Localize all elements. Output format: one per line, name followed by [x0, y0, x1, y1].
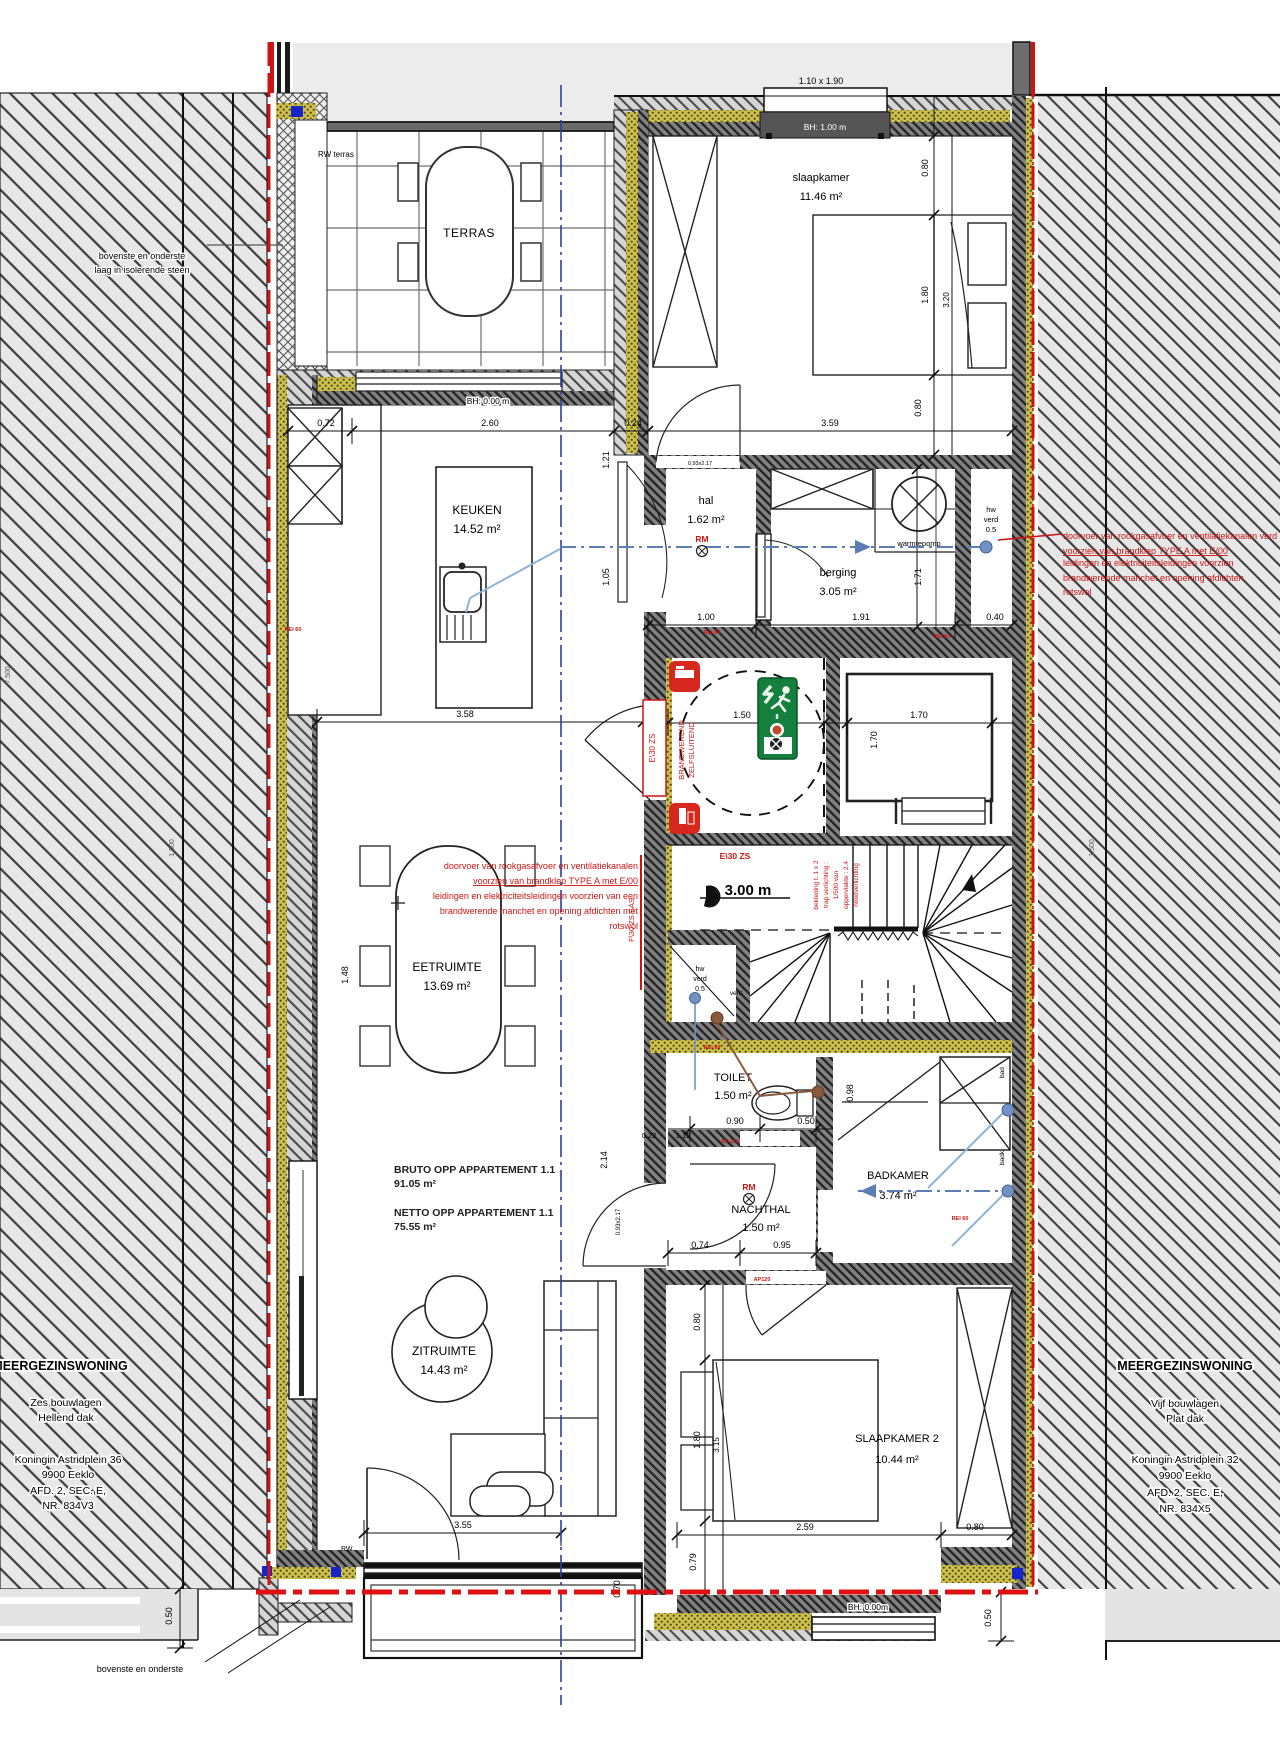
- svg-text:3.15: 3.15: [712, 1437, 721, 1453]
- svg-text:14.52 m²: 14.52 m²: [453, 522, 500, 536]
- svg-text:Plat dak: Plat dak: [1166, 1413, 1205, 1425]
- svg-text:rotswol: rotswol: [1063, 587, 1092, 597]
- svg-text:0.74: 0.74: [691, 1240, 709, 1250]
- svg-text:badk.: badk.: [999, 1149, 1006, 1165]
- svg-text:BH: 0.00m: BH: 0.00m: [848, 1602, 888, 1612]
- svg-text:hw: hw: [986, 505, 996, 514]
- svg-text:AP120: AP120: [754, 1277, 771, 1283]
- svg-text:AP 120: AP 120: [721, 1139, 739, 1145]
- svg-text:AFD. 2, SEC. E,: AFD. 2, SEC. E,: [1147, 1487, 1223, 1499]
- svg-text:hw: hw: [696, 966, 706, 973]
- svg-text:7.500: 7.500: [5, 666, 12, 684]
- svg-text:13.69 m²: 13.69 m²: [423, 979, 470, 993]
- svg-text:9900 Eeklo: 9900 Eeklo: [1159, 1470, 1212, 1482]
- svg-text:EETRUIMTE: EETRUIMTE: [412, 960, 481, 974]
- svg-text:E\30 ZS: E\30 ZS: [720, 851, 751, 861]
- svg-text:1.80: 1.80: [920, 286, 930, 304]
- svg-text:bovenste en onderste: bovenste en onderste: [99, 251, 186, 261]
- svg-text:hal: hal: [699, 495, 714, 507]
- svg-text:vent: vent: [730, 990, 742, 997]
- svg-text:RM: RM: [695, 534, 708, 544]
- svg-text:3.55: 3.55: [454, 1520, 472, 1530]
- svg-text:BRUTO OPP APPARTEMENT 1.1: BRUTO OPP APPARTEMENT 1.1: [394, 1164, 555, 1176]
- svg-text:Koningin Astridplein 36: Koningin Astridplein 36: [15, 1454, 122, 1466]
- svg-text:Vijf bouwlagen: Vijf bouwlagen: [1151, 1398, 1219, 1410]
- svg-text:doorvoer van rookgasafvoer en: doorvoer van rookgasafvoer en ventilatie…: [444, 861, 638, 871]
- svg-text:1.62 m²: 1.62 m²: [687, 514, 725, 526]
- svg-text:1.500: 1.500: [1089, 839, 1096, 857]
- svg-text:REI 60: REI 60: [704, 630, 721, 636]
- svg-text:F\30 ZS SAS: F\30 ZS SAS: [627, 898, 636, 942]
- svg-text:voorzien van brandklep TYPE A: voorzien van brandklep TYPE A met E/00: [1063, 546, 1228, 556]
- svg-text:RM: RM: [742, 1182, 755, 1192]
- svg-text:3.05 m²: 3.05 m²: [819, 586, 857, 598]
- svg-text:E\30 ZS: E\30 ZS: [648, 734, 657, 763]
- svg-text:verd: verd: [984, 515, 999, 524]
- svg-text:1.70: 1.70: [869, 731, 879, 749]
- svg-text:14.43 m²: 14.43 m²: [420, 1363, 467, 1377]
- svg-text:0.93x2.17: 0.93x2.17: [688, 461, 712, 467]
- svg-text:BH: 1.00 m: BH: 1.00 m: [804, 122, 847, 132]
- svg-text:0.90: 0.90: [726, 1116, 744, 1126]
- svg-text:1.00: 1.00: [697, 612, 715, 622]
- svg-text:doorvoer van rookgasafvoer en: doorvoer van rookgasafvoer en ventilatie…: [1063, 531, 1277, 541]
- svg-text:RW: RW: [341, 1546, 353, 1553]
- svg-text:1.50: 1.50: [733, 710, 751, 720]
- svg-text:0.98: 0.98: [845, 1084, 855, 1102]
- svg-text:0.70: 0.70: [612, 1580, 622, 1598]
- svg-text:1.80: 1.80: [692, 1431, 702, 1449]
- svg-text:0.24: 0.24: [624, 418, 642, 428]
- svg-text:Zes bouwlagen: Zes bouwlagen: [30, 1397, 101, 1409]
- svg-text:laag in isolerende steen: laag in isolerende steen: [94, 265, 189, 275]
- svg-text:1.91: 1.91: [852, 612, 870, 622]
- svg-text:trap verlichting :: trap verlichting :: [823, 862, 830, 908]
- svg-text:NETTO OPP APPARTEMENT 1.1: NETTO OPP APPARTEMENT 1.1: [394, 1207, 554, 1219]
- svg-text:BH: 0.00 m: BH: 0.00 m: [467, 396, 510, 406]
- svg-text:BRANDWEREND: BRANDWEREND: [677, 720, 686, 780]
- svg-text:1.21: 1.21: [601, 451, 611, 469]
- svg-text:brandwerende manchet en openin: brandwerende manchet en opening afdichte…: [1063, 573, 1244, 583]
- svg-text:0.72: 0.72: [317, 418, 335, 428]
- svg-text:ZELFSLUITEND: ZELFSLUITEND: [687, 722, 696, 778]
- svg-text:BADKAMER: BADKAMER: [867, 1170, 929, 1182]
- svg-text:3.58: 3.58: [456, 709, 474, 719]
- svg-text:bad: bad: [999, 1067, 1006, 1078]
- svg-text:0.79: 0.79: [688, 1553, 698, 1571]
- svg-text:REI 60: REI 60: [934, 634, 951, 640]
- svg-text:11.46 m²: 11.46 m²: [800, 191, 843, 203]
- svg-text:0.80: 0.80: [913, 399, 923, 417]
- svg-text:0.50: 0.50: [797, 1116, 815, 1126]
- svg-text:3.20: 3.20: [942, 292, 951, 308]
- svg-text:TERRAS: TERRAS: [443, 226, 495, 240]
- svg-text:verd: verd: [693, 976, 707, 983]
- svg-text:1.10: 1.10: [676, 1131, 691, 1140]
- svg-text:oppervlakte : 2.4: oppervlakte : 2.4: [843, 861, 850, 909]
- svg-text:1.50 m²: 1.50 m²: [714, 1090, 752, 1102]
- svg-text:REI 60: REI 60: [285, 627, 302, 633]
- svg-text:brandwerende manchet en openin: brandwerende manchet en opening afdichte…: [440, 906, 639, 916]
- svg-text:1.48: 1.48: [340, 966, 350, 984]
- svg-text:NR. 834X5: NR. 834X5: [1159, 1503, 1211, 1515]
- svg-text:75.55 m²: 75.55 m²: [394, 1221, 437, 1233]
- svg-text:0.5: 0.5: [986, 525, 996, 534]
- svg-text:2.14: 2.14: [599, 1151, 609, 1169]
- svg-text:0.50: 0.50: [983, 1609, 993, 1627]
- svg-text:NACHTHAL: NACHTHAL: [731, 1204, 790, 1216]
- svg-text:0.50: 0.50: [164, 1607, 174, 1625]
- svg-text:2.60: 2.60: [481, 418, 499, 428]
- svg-text:10.44 m²: 10.44 m²: [875, 1454, 919, 1466]
- svg-text:RW terras: RW terras: [318, 150, 354, 159]
- svg-text:voorzien van brandklep TYPE A: voorzien van brandklep TYPE A met E/00: [473, 876, 638, 886]
- svg-text:REI 60: REI 60: [952, 1216, 969, 1222]
- svg-text:1/500 van: 1/500 van: [833, 870, 840, 899]
- svg-text:Koningin Astridplein 32: Koningin Astridplein 32: [1132, 1454, 1239, 1466]
- svg-text:leidingen en elektriciteitslei: leidingen en elektriciteitsleidingen voo…: [433, 891, 638, 901]
- svg-text:0.40: 0.40: [986, 612, 1004, 622]
- svg-text:1.50 m²: 1.50 m²: [742, 1222, 780, 1234]
- svg-text:3.00 m: 3.00 m: [725, 882, 772, 899]
- svg-text:bekleding t. 1 x 2: bekleding t. 1 x 2: [813, 860, 820, 910]
- svg-text:0.5: 0.5: [695, 986, 705, 993]
- svg-text:AFD. 2, SEC. E,: AFD. 2, SEC. E,: [30, 1485, 106, 1497]
- svg-text:MEERGEZINSWONING: MEERGEZINSWONING: [1117, 1359, 1252, 1373]
- svg-text:1.10 x 1.90: 1.10 x 1.90: [799, 76, 844, 86]
- svg-text:NR. 834V3: NR. 834V3: [42, 1500, 94, 1512]
- svg-text:bovenste en onderste: bovenste en onderste: [97, 1664, 184, 1674]
- svg-text:berging: berging: [820, 567, 857, 579]
- svg-text:9900 Eeklo: 9900 Eeklo: [42, 1469, 95, 1481]
- svg-text:91.05 m²: 91.05 m²: [394, 1178, 437, 1190]
- svg-text:1.71: 1.71: [913, 568, 923, 586]
- svg-text:0.95: 0.95: [773, 1240, 791, 1250]
- svg-text:REI 60: REI 60: [704, 1045, 721, 1051]
- svg-text:leidingen en elektriciteitslei: leidingen en elektriciteitsleidingen voo…: [1063, 558, 1234, 568]
- svg-text:KEUKEN: KEUKEN: [452, 503, 501, 517]
- svg-text:0.80: 0.80: [692, 1313, 702, 1331]
- svg-text:SLAAPKAMER 2: SLAAPKAMER 2: [855, 1433, 939, 1445]
- svg-text:MEERGEZINSWONING: MEERGEZINSWONING: [0, 1359, 128, 1373]
- svg-text:1.05: 1.05: [601, 568, 611, 586]
- svg-text:0.80: 0.80: [966, 1522, 984, 1532]
- svg-text:1.70: 1.70: [910, 710, 928, 720]
- svg-text:Hellend dak: Hellend dak: [38, 1412, 94, 1424]
- svg-text:2.59: 2.59: [796, 1522, 814, 1532]
- svg-text:slaapkamer: slaapkamer: [793, 172, 850, 184]
- svg-text:ZITRUIMTE: ZITRUIMTE: [412, 1344, 476, 1358]
- svg-text:0.80: 0.80: [920, 159, 930, 177]
- svg-text:3.59: 3.59: [821, 418, 839, 428]
- svg-text:noodverlichting: noodverlichting: [853, 863, 860, 907]
- svg-text:0.22: 0.22: [642, 1131, 657, 1140]
- svg-text:0.93x2.17: 0.93x2.17: [616, 1208, 622, 1235]
- svg-text:1.500: 1.500: [169, 839, 176, 857]
